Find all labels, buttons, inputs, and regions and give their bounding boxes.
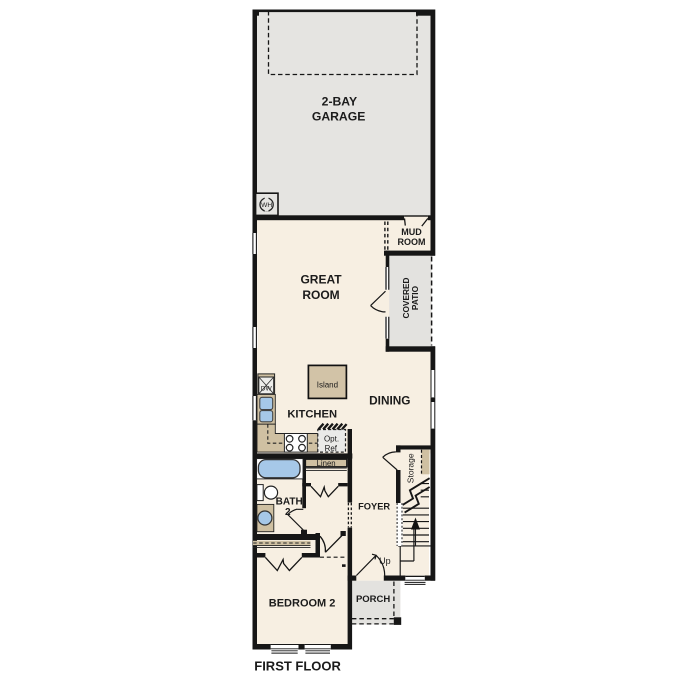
svg-text:GREAT: GREAT	[300, 273, 342, 287]
svg-text:Up: Up	[379, 556, 391, 566]
svg-text:ROOM: ROOM	[398, 237, 426, 247]
svg-text:Island: Island	[317, 380, 338, 389]
svg-text:2-BAY: 2-BAY	[322, 95, 357, 109]
svg-text:2: 2	[285, 507, 291, 518]
svg-text:Storage: Storage	[405, 453, 415, 483]
svg-text:FOYER: FOYER	[358, 502, 390, 512]
svg-text:Ref: Ref	[325, 444, 338, 453]
svg-text:DINING: DINING	[369, 393, 410, 407]
svg-text:MUD: MUD	[401, 227, 422, 237]
svg-text:WH: WH	[261, 202, 272, 209]
svg-text:KITCHEN: KITCHEN	[287, 409, 337, 421]
svg-text:ROOM: ROOM	[302, 288, 339, 302]
svg-text:BEDROOM 2: BEDROOM 2	[269, 598, 336, 610]
svg-text:DW: DW	[261, 385, 273, 392]
svg-text:PORCH: PORCH	[356, 594, 390, 605]
svg-text:BATH: BATH	[276, 496, 303, 507]
svg-text:FIRST FLOOR: FIRST FLOOR	[254, 658, 341, 673]
svg-text:Linen: Linen	[317, 459, 336, 468]
svg-text:GARAGE: GARAGE	[312, 109, 366, 123]
svg-text:Opt.: Opt.	[324, 435, 339, 444]
svg-text:PATIO: PATIO	[410, 285, 420, 310]
